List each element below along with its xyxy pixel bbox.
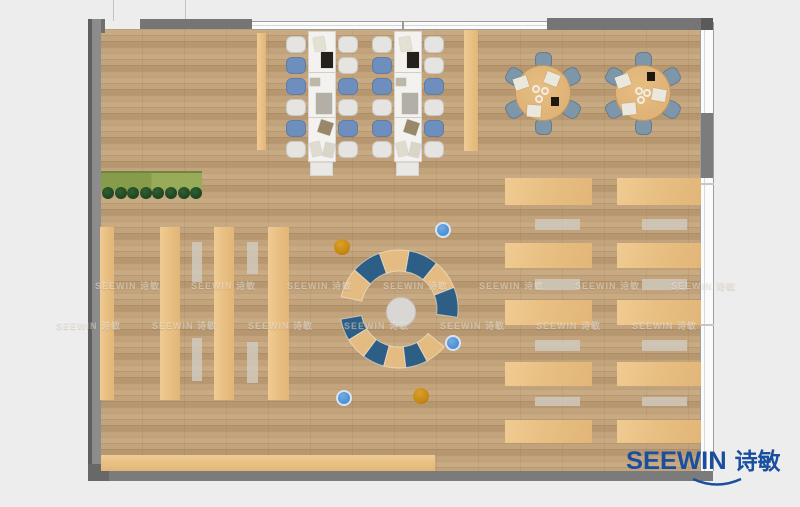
bookshelf-column <box>100 227 114 400</box>
bench-row <box>535 397 580 406</box>
aisle-bench <box>192 242 202 282</box>
watermark-text: SEEWIN 诗敏 <box>575 279 640 292</box>
watermark-text: SEEWIN 诗敏 <box>56 319 121 332</box>
ottoman-blue <box>336 390 352 406</box>
wall-top-b-cap <box>701 18 713 30</box>
bookshelf-column <box>214 227 234 400</box>
table-item <box>402 93 418 114</box>
ottoman-orange <box>413 388 429 404</box>
bookshelf-column <box>160 227 180 400</box>
bench-row <box>642 340 687 351</box>
watermark-text: SEEWIN 诗敏 <box>287 279 352 292</box>
brand-logo: SEEWIN 诗敏 <box>627 449 781 474</box>
ottoman-blue <box>435 222 451 238</box>
bench-row <box>535 219 580 230</box>
chair <box>286 36 306 53</box>
watermark-text: SEEWIN 诗敏 <box>632 319 697 332</box>
chair <box>372 78 392 95</box>
table-item <box>321 52 333 68</box>
chair <box>286 99 306 116</box>
cabinet-strip <box>464 30 478 151</box>
desk-row <box>617 243 701 268</box>
bench-row <box>642 397 687 406</box>
bottom-counter <box>101 455 435 471</box>
desk-row <box>617 178 701 205</box>
window-mullion <box>402 21 404 30</box>
plant <box>178 187 190 199</box>
chair <box>372 57 392 74</box>
desk-row <box>505 243 592 268</box>
chair <box>372 36 392 53</box>
watermark-text: SEEWIN 诗敏 <box>440 319 505 332</box>
table-dark-item <box>647 72 655 81</box>
desk-row <box>505 420 592 443</box>
chair <box>338 99 358 116</box>
chair <box>424 36 444 53</box>
watermark-text: SEEWIN 诗敏 <box>152 319 217 332</box>
plant <box>165 187 177 199</box>
brand-logo-text-en: SEEWIN <box>626 449 727 474</box>
desk-row <box>505 178 592 205</box>
chair <box>424 78 444 95</box>
watermark-text: SEEWIN 诗敏 <box>248 319 313 332</box>
chair <box>372 99 392 116</box>
watermark-text: SEEWIN 诗敏 <box>95 279 160 292</box>
window-frame-joint <box>700 183 714 185</box>
watermark-text: SEEWIN 诗敏 <box>191 279 256 292</box>
chair <box>372 120 392 137</box>
table-paper <box>621 102 636 115</box>
ottoman-blue <box>445 335 461 351</box>
table-item <box>396 78 406 86</box>
study-table-end-cap <box>396 162 419 176</box>
cup <box>532 85 540 93</box>
chair <box>424 57 444 74</box>
watermark-text: SEEWIN 诗敏 <box>344 319 409 332</box>
window-right <box>700 22 714 471</box>
table-item <box>310 78 320 86</box>
table-item <box>399 36 412 52</box>
wall-right-column <box>701 113 713 178</box>
study-table-end-cap <box>310 162 333 176</box>
cup <box>541 87 549 95</box>
chair <box>286 141 306 158</box>
bench-row <box>642 219 687 230</box>
cup <box>643 89 651 97</box>
plant <box>102 187 114 199</box>
aisle-bench <box>192 338 202 381</box>
plant <box>115 187 127 199</box>
chair <box>338 36 358 53</box>
aisle-bench <box>247 342 258 383</box>
cup <box>637 96 645 104</box>
ottoman-orange <box>334 239 350 255</box>
bookshelf-column <box>268 227 289 400</box>
chair <box>286 120 306 137</box>
watermark-text: SEEWIN 诗敏 <box>671 279 736 292</box>
desk-row <box>617 420 701 443</box>
cup <box>635 87 643 95</box>
window-frame-joint <box>700 324 714 326</box>
chair <box>338 120 358 137</box>
desk-row <box>505 362 592 386</box>
watermark-text: SEEWIN 诗敏 <box>383 279 448 292</box>
table-item <box>316 93 332 114</box>
table-paper <box>527 105 542 118</box>
exterior-wall-line <box>185 0 186 19</box>
table-item <box>407 52 419 68</box>
table-item <box>313 36 326 52</box>
watermark-text: SEEWIN 诗敏 <box>536 319 601 332</box>
watermark-text: SEEWIN 诗敏 <box>479 279 544 292</box>
wall-top-b <box>547 18 713 30</box>
chair <box>286 78 306 95</box>
cup <box>535 95 543 103</box>
aisle-bench <box>247 242 258 274</box>
desk-row <box>617 362 701 386</box>
window-top <box>252 21 548 30</box>
chair <box>286 57 306 74</box>
cabinet-strip <box>257 33 266 150</box>
chair <box>372 141 392 158</box>
brand-logo-text-cn: 诗敏 <box>735 449 781 474</box>
table-paper <box>651 88 667 102</box>
plant <box>140 187 152 199</box>
brand-logo-swoosh-icon <box>691 477 743 489</box>
chair <box>338 57 358 74</box>
chair <box>338 141 358 158</box>
bench-row <box>535 340 580 351</box>
table-dark-item <box>551 97 559 106</box>
floor-plan: SEEWIN 诗敏 SEEWIN 诗敏SEEWIN 诗敏SEEWIN 诗敏SEE… <box>0 0 800 507</box>
chair <box>424 99 444 116</box>
chair <box>338 78 358 95</box>
wall-top-a <box>140 19 252 29</box>
chair <box>424 141 444 158</box>
exterior-wall-line <box>113 0 114 21</box>
chair <box>424 120 444 137</box>
wall-bottom <box>88 471 713 481</box>
